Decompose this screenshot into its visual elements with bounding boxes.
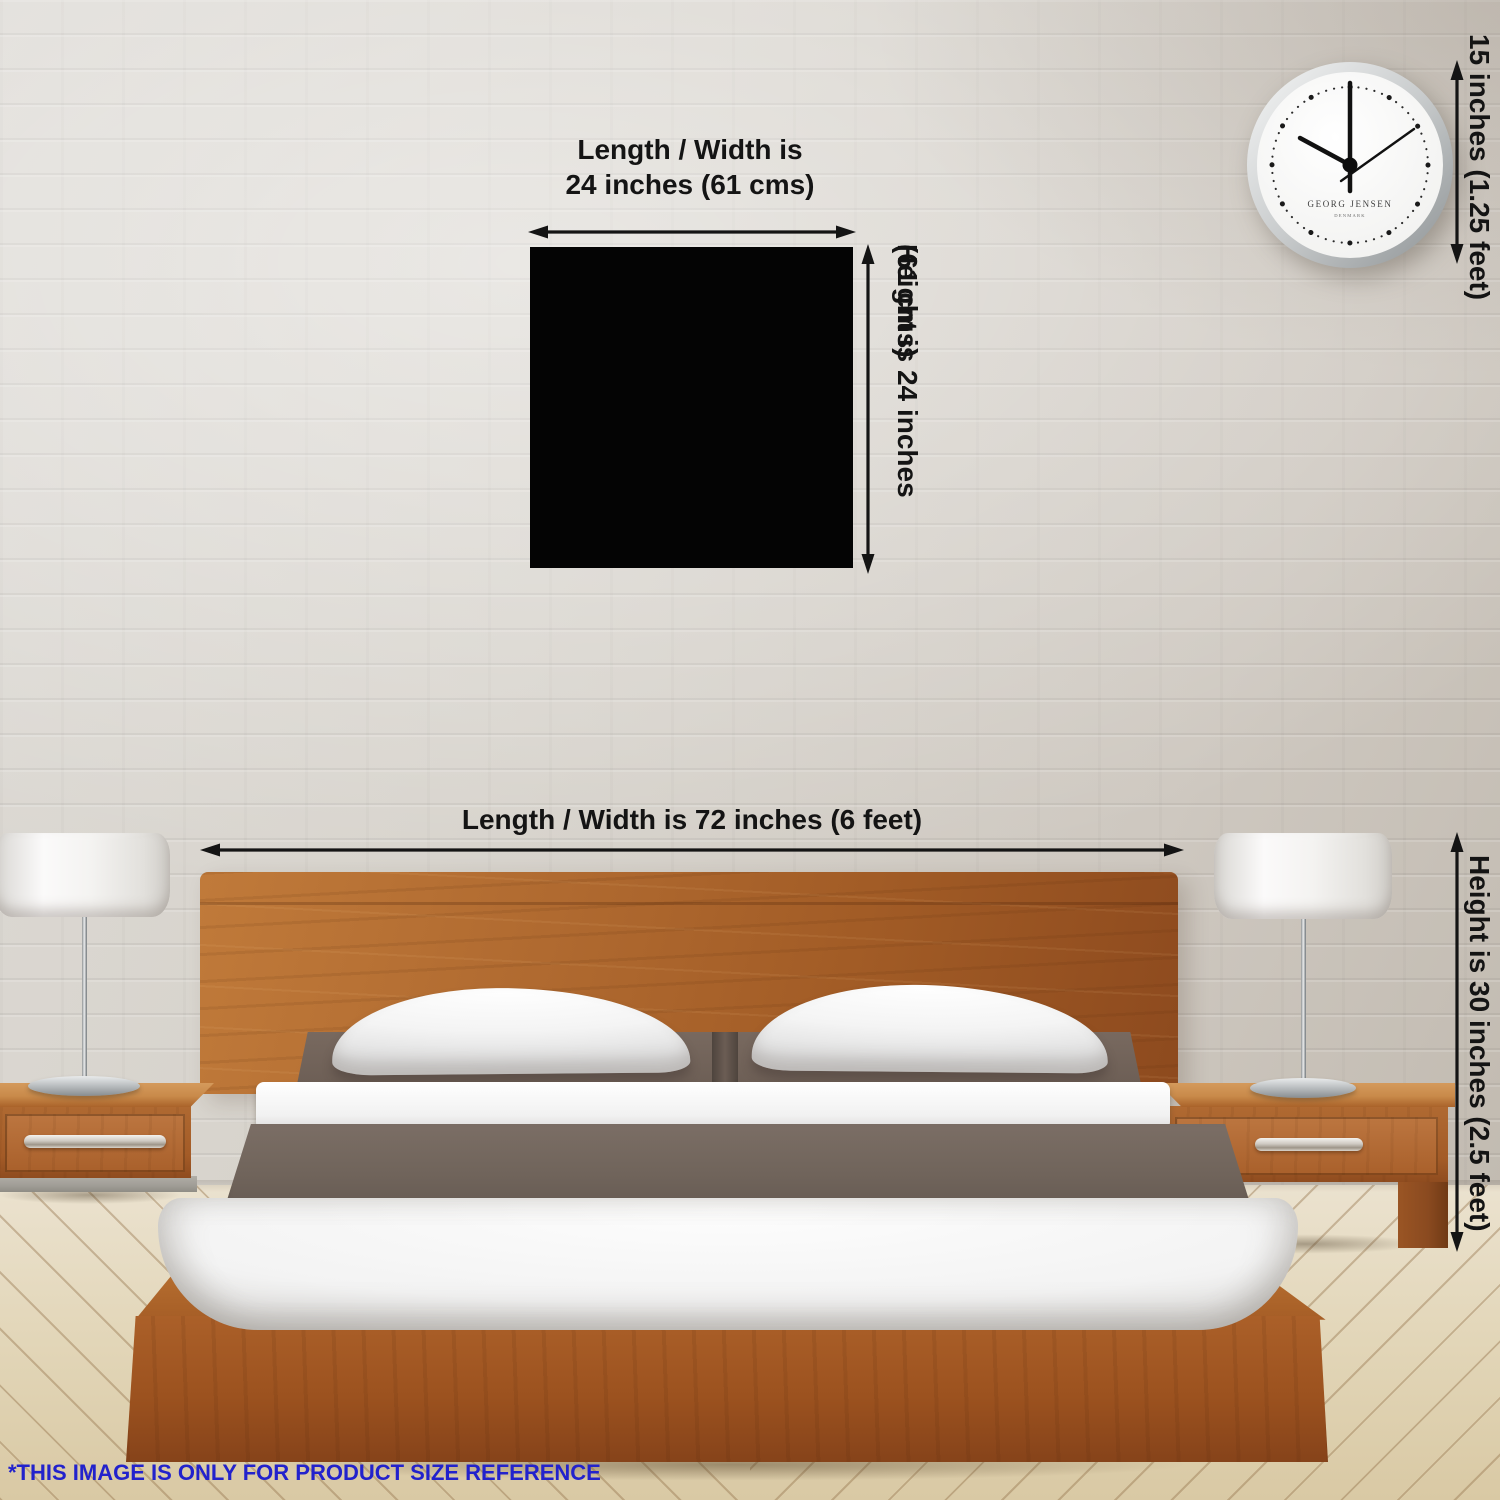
clock-center-cap <box>1343 158 1358 173</box>
product-height-arrow <box>858 244 878 574</box>
product-height-label: Height is 24 inches (61 cms) <box>890 244 968 574</box>
right-nightstand-leg-right <box>1398 1178 1448 1248</box>
right-lamp-base <box>1250 1078 1356 1098</box>
wall-clock-svg: GEORG JENSEN DENMARK <box>1242 57 1458 273</box>
product-width-label: Length / Width is 24 inches (61 cms) <box>420 132 960 202</box>
product-width-arrow <box>528 222 856 242</box>
right-drawer-handle <box>1255 1138 1363 1151</box>
left-lamp-base <box>28 1076 140 1096</box>
product-size-reference-image: GEORG JENSEN DENMARK Length / Width is 2… <box>0 0 1500 1500</box>
bed-height-label: Height is 30 inches (2.5 feet) <box>1462 818 1500 1268</box>
mattress-front <box>158 1198 1298 1330</box>
clock-origin-text: DENMARK <box>1334 213 1366 218</box>
white-sheet-band <box>256 1082 1170 1130</box>
clock-brand-text: GEORG JENSEN <box>1308 199 1393 209</box>
left-nightstand-group <box>0 830 220 1250</box>
left-lamp-shade <box>0 833 170 917</box>
left-lamp-stem <box>82 915 87 1087</box>
right-lamp-shade <box>1214 833 1392 919</box>
headboard-seam <box>200 902 1178 905</box>
bed-platform-front <box>126 1316 1328 1462</box>
left-drawer-handle <box>24 1135 166 1148</box>
size-reference-disclaimer: *THIS IMAGE IS ONLY FOR PRODUCT SIZE REF… <box>8 1460 908 1486</box>
wall-clock: GEORG JENSEN DENMARK <box>1242 57 1458 273</box>
product-height-label-line2: (61 cms) <box>890 244 925 358</box>
bed-width-label: Length / Width is 72 inches (6 feet) <box>292 802 1092 837</box>
clock-height-label: 15 inches (1.25 feet) <box>1462 20 1500 315</box>
right-lamp-stem <box>1301 918 1306 1088</box>
product-width-label-line2: 24 inches (61 cms) <box>420 167 960 202</box>
product-width-label-line1: Length / Width is <box>420 132 960 167</box>
left-nightstand-base <box>0 1176 197 1192</box>
bed-width-arrow <box>200 840 1184 860</box>
product-black-square <box>530 247 853 568</box>
